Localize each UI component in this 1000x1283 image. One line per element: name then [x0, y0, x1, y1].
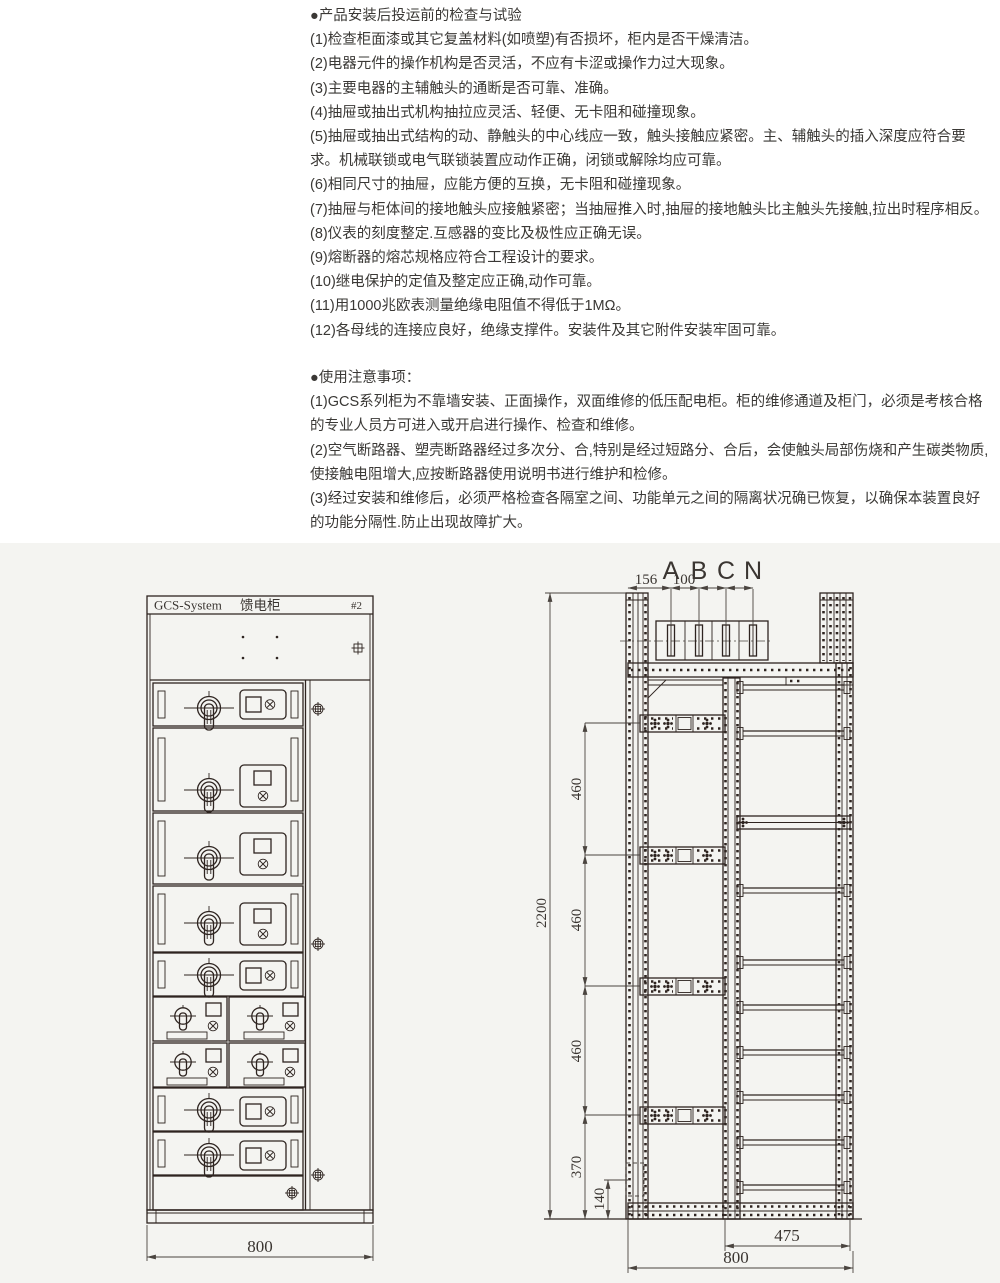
drawer-unit[interactable] [153, 683, 303, 730]
depth-dimensions: 475 800 [628, 1219, 853, 1273]
inspection-item: (5)抽屉或抽出式结构的动、静触头的中心线应一致，触头接触应紧密。主、辅触头的插… [310, 125, 994, 173]
small-drawer-unit[interactable] [153, 997, 227, 1041]
phase-label-n: N [744, 557, 762, 585]
middle-upright-frame [723, 678, 740, 1219]
horizontal-cross-braces [640, 715, 725, 1124]
indicator-panel [240, 765, 286, 807]
inspection-item: (4)抽屉或抽出式机构抽拉应灵活、轻便、无卡阻和碰撞现象。 [310, 101, 994, 125]
vent-slot [291, 738, 298, 801]
cabinet-side-view-drawing: A B C N 156 100 [540, 545, 880, 1283]
panel-dot [242, 657, 245, 660]
inspection-item: (7)抽屉与柜体间的接地触头应接触紧密；当抽屉推入时,抽屉的接地触头比主触头先接… [310, 198, 994, 222]
cabinet-name-label: 馈电柜 [240, 598, 281, 613]
vent-slot [291, 1140, 298, 1167]
inspection-item: (6)相同尺寸的抽屉，应能方便的互换，无卡阻和碰撞现象。 [310, 173, 994, 197]
usage-title: ●使用注意事项： [310, 366, 994, 390]
dim-height: 2200 [534, 898, 550, 928]
right-cable-compartment [306, 680, 326, 1210]
vent-slot [158, 894, 165, 944]
dim-bottom-section: 370 [569, 1156, 585, 1179]
screw-icon [311, 1168, 325, 1182]
heavy-guide-rail [737, 816, 850, 829]
indicator-panel [240, 1141, 286, 1170]
drawer-guide-rails [737, 682, 850, 1194]
vent-slot [291, 961, 298, 988]
inspection-item: (1)检查柜面漆或其它复盖材料(如喷塑)有否损坏，柜内是否干燥清洁。 [310, 28, 994, 52]
drawer-unit[interactable] [153, 813, 303, 884]
inspection-item: (9)熔断器的熔芯规格应符合工程设计的要求。 [310, 246, 994, 270]
vent-slot [291, 1096, 298, 1123]
inspection-item: (11)用1000兆欧表测量绝缘电阻值不得低于1MΩ。 [310, 294, 994, 318]
dim-section-1: 460 [569, 778, 585, 801]
small-drawer-unit[interactable] [153, 1043, 227, 1087]
dim-front-width: 800 [247, 1237, 273, 1256]
indicator-panel [240, 833, 286, 875]
base-dimension: 140 [592, 1180, 628, 1219]
drawer-unit[interactable] [153, 1132, 303, 1177]
vent-slot [158, 691, 165, 718]
vent-slot [158, 1140, 165, 1167]
screw-icon [285, 1186, 299, 1200]
inspection-title: ●产品安装后投运前的检查与试验 [310, 4, 994, 28]
cabinet-front-view-drawing: GCS-System 馈电柜 #2 [140, 590, 390, 1282]
usage-item: (1)GCS系列柜为不靠墙安装、正面操作，双面维修的低压配电柜。柜的维修通道及柜… [310, 390, 994, 438]
screw-icon [311, 937, 325, 951]
dim-section-2: 460 [569, 909, 585, 932]
cabinet-tag-label: #2 [351, 600, 362, 612]
small-drawer-unit[interactable] [229, 1043, 305, 1087]
busbar [750, 625, 757, 656]
busbar [723, 625, 730, 656]
rear-upper-post [820, 593, 853, 663]
drawer-unit[interactable] [153, 886, 303, 952]
vent-slot [291, 691, 298, 718]
rotary-switch-icon[interactable] [184, 906, 234, 945]
drawer-unit[interactable] [153, 728, 303, 812]
usage-item: (2)空气断路器、塑壳断路器经过多次分、合,特别是经过短路分、合后，会使触头局部… [310, 439, 994, 487]
indicator-panel [240, 1097, 286, 1126]
drawer-unit[interactable] [153, 1088, 303, 1132]
cabinet-plinth [147, 1210, 373, 1223]
screw-icon [311, 702, 325, 716]
busbar [696, 625, 703, 656]
corner-brace [648, 680, 666, 698]
rotary-switch-icon[interactable] [184, 958, 234, 997]
inspection-item: (8)仪表的刻度整定.互感器的变比及极性应正确无误。 [310, 222, 994, 246]
inspection-item: (3)主要电器的主辅触头的通断是否可靠、准确。 [310, 77, 994, 101]
bottom-blank-panel [153, 1176, 303, 1210]
vent-slot [158, 821, 165, 876]
panel-dot [242, 636, 245, 639]
vent-slot [158, 738, 165, 801]
phase-label-c: C [717, 557, 735, 585]
indicator-panel [240, 690, 286, 719]
dim-section-3: 460 [569, 1040, 585, 1063]
screw-icon [352, 642, 365, 655]
inspection-item: (10)继电保护的定值及整定应正确,动作可靠。 [310, 270, 994, 294]
indicator-panel [240, 961, 286, 990]
dim-busbar-offset: 156 [635, 572, 658, 588]
rotary-switch-icon[interactable] [184, 773, 234, 812]
front-width-dimension: 800 [147, 1225, 373, 1261]
vent-slot [158, 961, 165, 988]
vent-slot [158, 1096, 165, 1123]
indicator-panel [240, 903, 286, 945]
front-upright-frame [626, 593, 648, 1219]
usage-item: (3)经过安装和维修后，必须严格检查各隔室之间、功能单元之间的隔离状况确已恢复，… [310, 487, 994, 535]
busbar-dimensions: A B C N 156 100 [628, 557, 762, 588]
rotary-switch-icon[interactable] [184, 1093, 234, 1132]
inspection-item: (2)电器元件的操作机构是否灵活，不应有卡涩或操作力过大现象。 [310, 52, 994, 76]
vent-slot [291, 821, 298, 876]
vent-slot [291, 894, 298, 944]
top-blank-panel [150, 636, 370, 680]
rotary-switch-icon[interactable] [184, 841, 234, 880]
cabinet-nameplate: GCS-System 馈电柜 #2 [154, 598, 362, 614]
rotary-switch-icon[interactable] [184, 691, 234, 730]
cabinet-brand-label: GCS-System [154, 598, 222, 613]
dim-busbar-pitch: 100 [673, 572, 696, 588]
dim-inner-depth: 475 [774, 1226, 800, 1245]
panel-dot [276, 636, 279, 639]
usage-notes: ●使用注意事项： (1)GCS系列柜为不靠墙安装、正面操作，双面维修的低压配电柜… [310, 366, 994, 535]
drawer-unit[interactable] [153, 953, 303, 997]
panel-dot [276, 657, 279, 660]
height-dimension: 2200 [534, 593, 626, 1219]
inspection-item: (12)各母线的连接应良好，绝缘支撑件。安装件及其它附件安装牢固可靠。 [310, 319, 994, 343]
small-drawer-unit[interactable] [229, 997, 305, 1041]
rotary-switch-icon[interactable] [184, 1138, 234, 1177]
inspection-notes: ●产品安装后投运前的检查与试验 (1)检查柜面漆或其它复盖材料(如喷塑)有否损坏… [310, 4, 994, 343]
rear-lower-upright [836, 663, 853, 1219]
busbar [668, 625, 675, 656]
dim-base: 140 [592, 1188, 608, 1211]
dim-depth: 800 [723, 1248, 749, 1267]
